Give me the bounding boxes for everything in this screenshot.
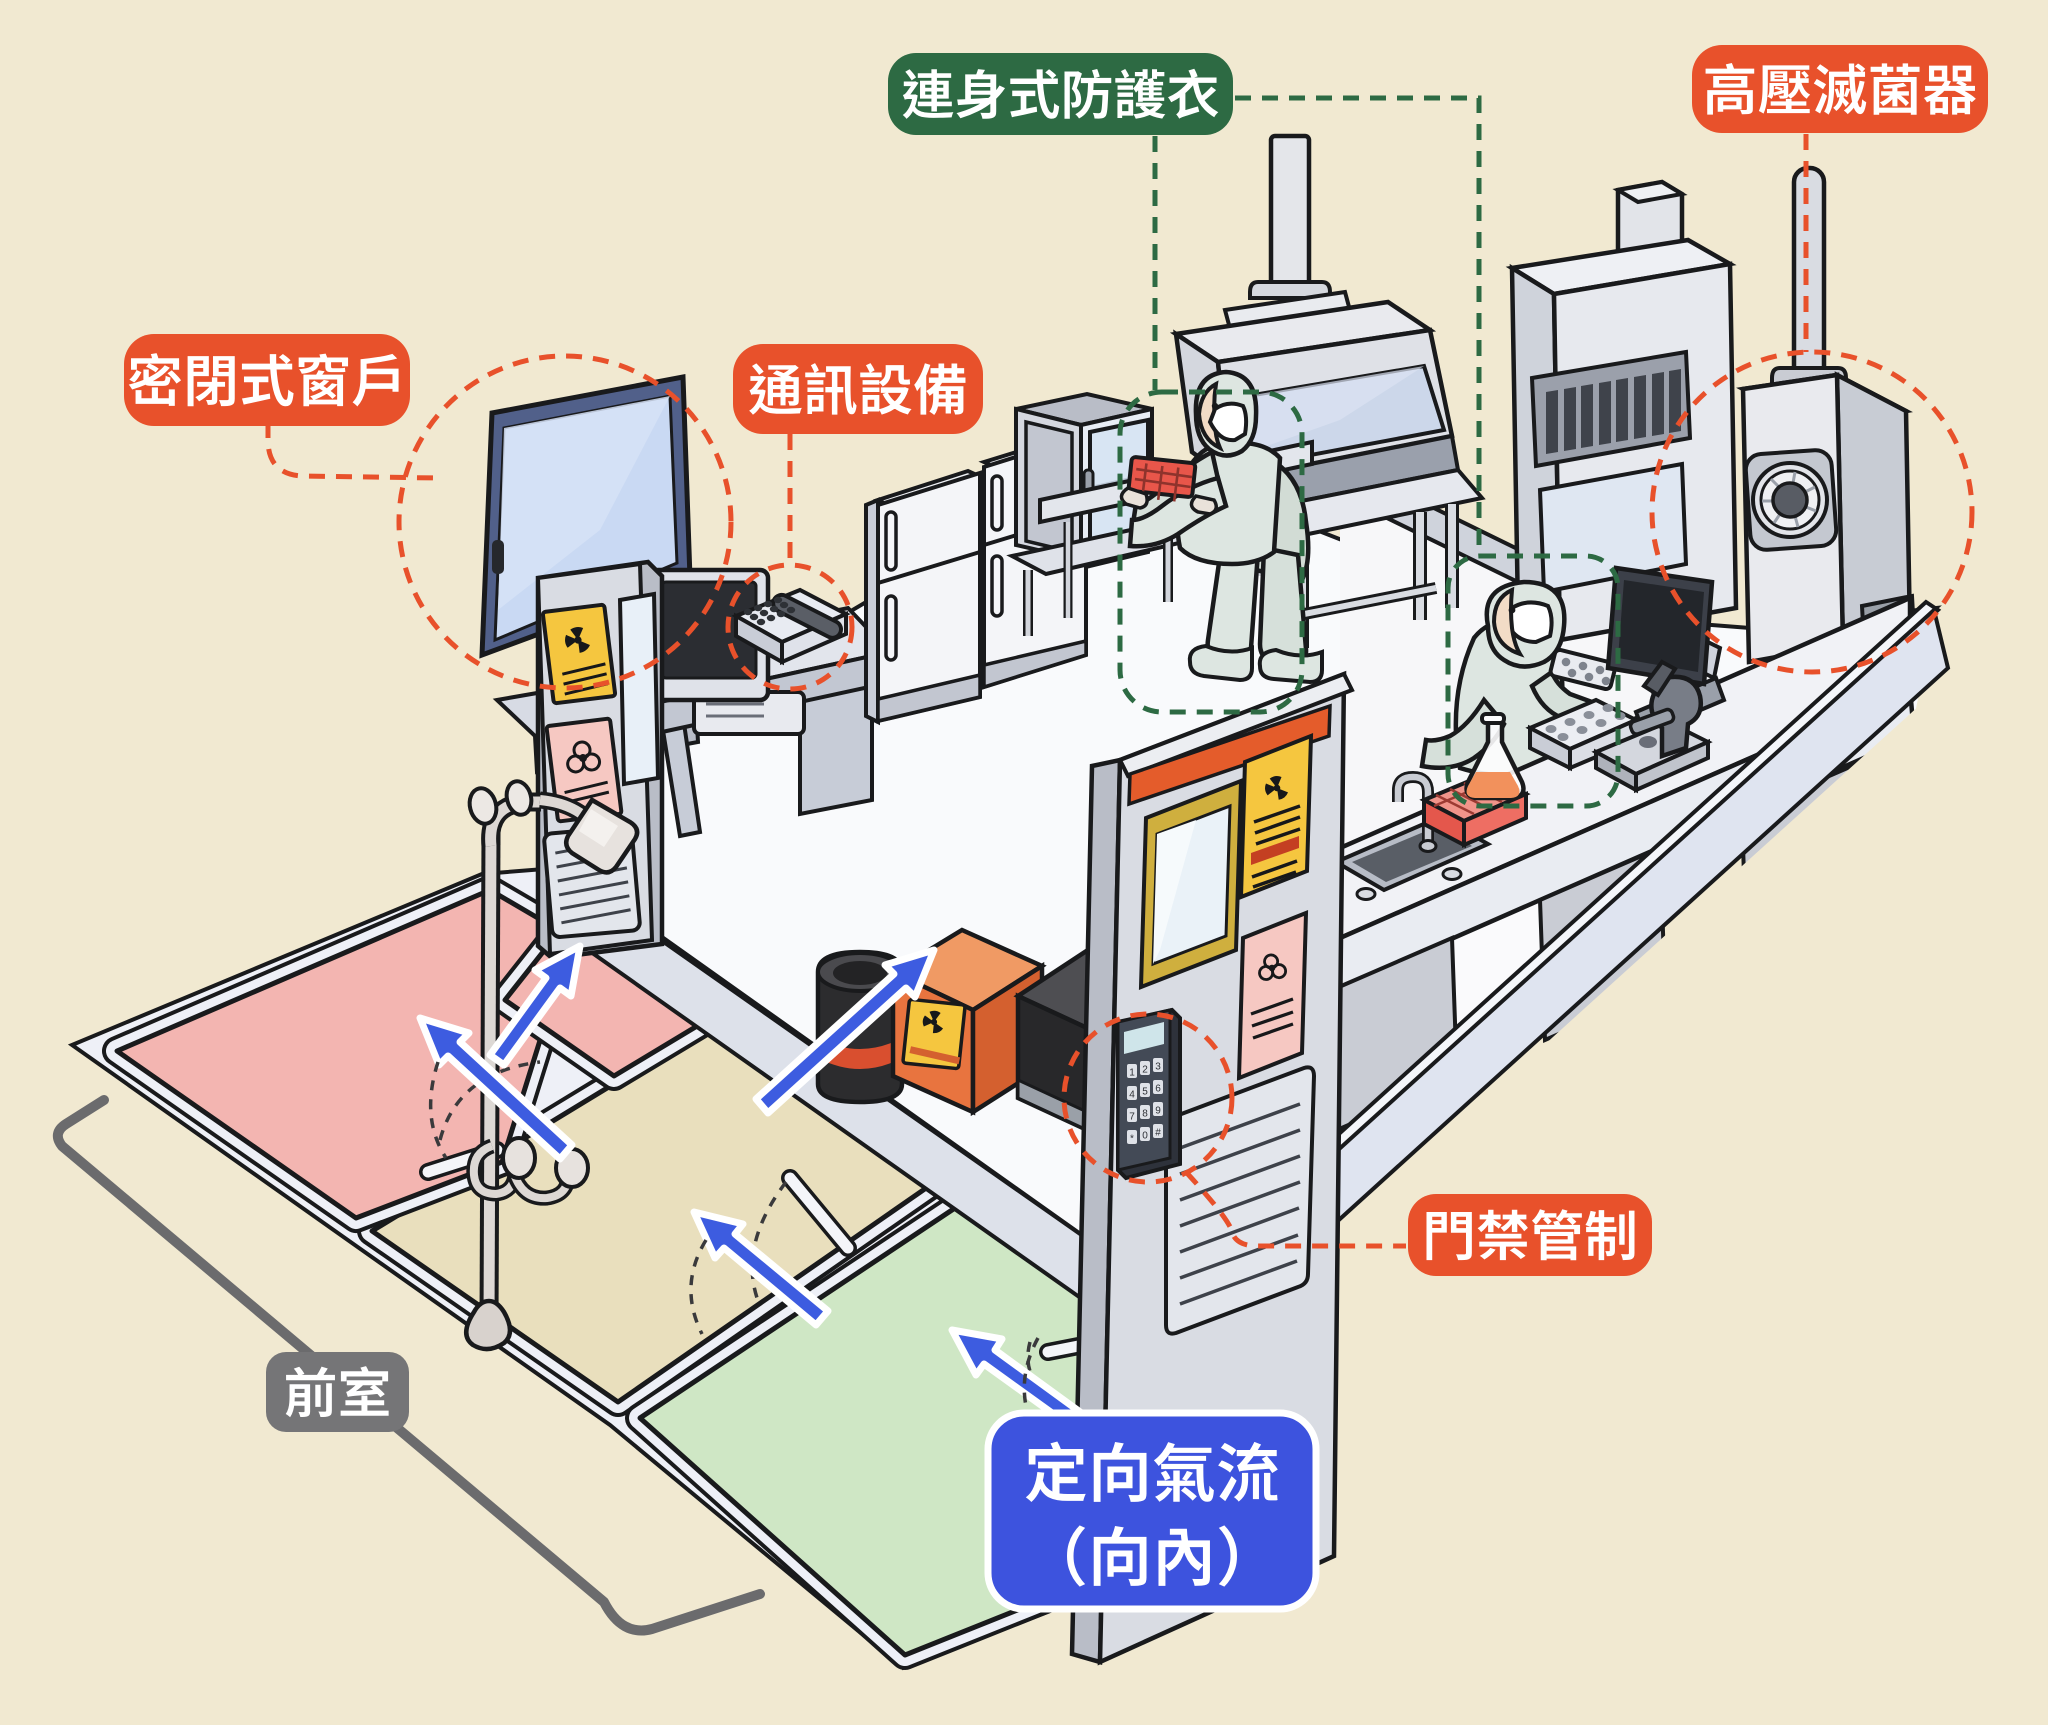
svg-text:5: 5 <box>1142 1087 1148 1098</box>
svg-text:4: 4 <box>1129 1090 1135 1101</box>
svg-text:#: # <box>1155 1128 1161 1139</box>
svg-text:0: 0 <box>1142 1131 1148 1142</box>
svg-text:8: 8 <box>1142 1109 1148 1120</box>
svg-text:1: 1 <box>1129 1068 1135 1079</box>
svg-text:6: 6 <box>1155 1084 1161 1095</box>
svg-text:7: 7 <box>1129 1112 1135 1123</box>
svg-text:9: 9 <box>1155 1106 1161 1117</box>
svg-text:3: 3 <box>1155 1062 1161 1073</box>
svg-text:*: * <box>1130 1134 1134 1145</box>
svg-text:2: 2 <box>1142 1065 1148 1076</box>
